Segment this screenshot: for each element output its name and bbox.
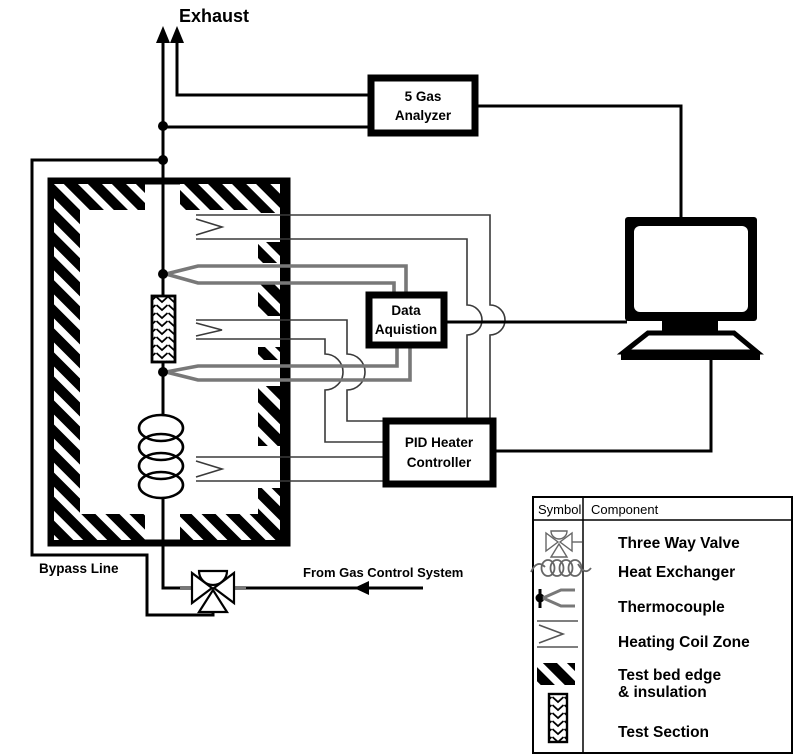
legend-label-thermocouple: Thermocouple <box>618 599 725 616</box>
tc2-junction-dot <box>158 367 168 377</box>
gas-inlet-arrow <box>354 581 369 595</box>
schematic-page: 5 Gas Analyzer Data Aquistion PID Heater… <box>0 0 797 756</box>
three-way-valve <box>180 571 246 612</box>
test-bed-edge-icon <box>537 663 575 685</box>
bypass-line-label: Bypass Line <box>39 561 119 576</box>
pipe-junction-dot-1 <box>158 121 168 131</box>
data-acquisition-box: Data Aquistion <box>369 295 627 345</box>
daq-label-1: Data <box>391 303 421 318</box>
pid-rect <box>386 421 493 484</box>
gas-analyzer-label-2: Analyzer <box>395 108 452 123</box>
test-section-symbol <box>152 296 175 362</box>
monitor-screen <box>634 226 748 312</box>
gas-analyzer-rect <box>371 78 475 133</box>
computer-icon <box>621 217 760 360</box>
legend-header-component: Component <box>591 502 659 517</box>
pid-label-1: PID Heater <box>405 435 474 450</box>
legend-header-symbol: Symbol <box>538 502 581 517</box>
daq-label-2: Aquistion <box>375 322 437 337</box>
gas-analyzer-label-1: 5 Gas <box>405 89 442 104</box>
legend-label-test-bed-2: & insulation <box>618 684 707 701</box>
exhaust-label: Exhaust <box>179 6 249 26</box>
legend-label-heat-exchanger: Heat Exchanger <box>618 564 735 581</box>
legend-label-test-bed-1: Test bed edge <box>618 667 721 684</box>
gas-analyzer-box: 5 Gas Analyzer <box>371 78 681 220</box>
legend-table: Symbol Component Three Way Valve Heat Ex… <box>531 497 792 753</box>
pid-label-2: Controller <box>407 455 472 470</box>
analyzer-to-computer-line <box>478 106 681 220</box>
legend-label-test-section: Test Section <box>618 724 709 741</box>
insulation-bottom-band-left <box>54 514 145 540</box>
insulation-top-band-left <box>54 184 145 210</box>
pid-to-computer-line <box>494 358 711 451</box>
from-gas-control-label: From Gas Control System <box>303 565 463 580</box>
chamber-right-bar <box>280 181 290 543</box>
pipe-junction-dot-2 <box>158 155 168 165</box>
keyboard-body <box>624 333 757 352</box>
test-section-icon <box>549 694 567 742</box>
exhaust-arrow-2 <box>170 26 184 43</box>
schematic-canvas: 5 Gas Analyzer Data Aquistion PID Heater… <box>0 0 797 756</box>
legend-label-heating-zone: Heating Coil Zone <box>618 634 750 651</box>
keyboard-base <box>621 351 760 360</box>
pid-controller-box: PID Heater Controller <box>386 358 711 484</box>
legend-label-valve: Three Way Valve <box>618 535 740 552</box>
insulation-left-band <box>54 184 80 540</box>
exhaust-arrow-1 <box>156 26 170 43</box>
tc1-junction-dot <box>158 269 168 279</box>
test-section-rect <box>152 296 175 362</box>
analyzer-exhaust-line <box>177 40 368 95</box>
